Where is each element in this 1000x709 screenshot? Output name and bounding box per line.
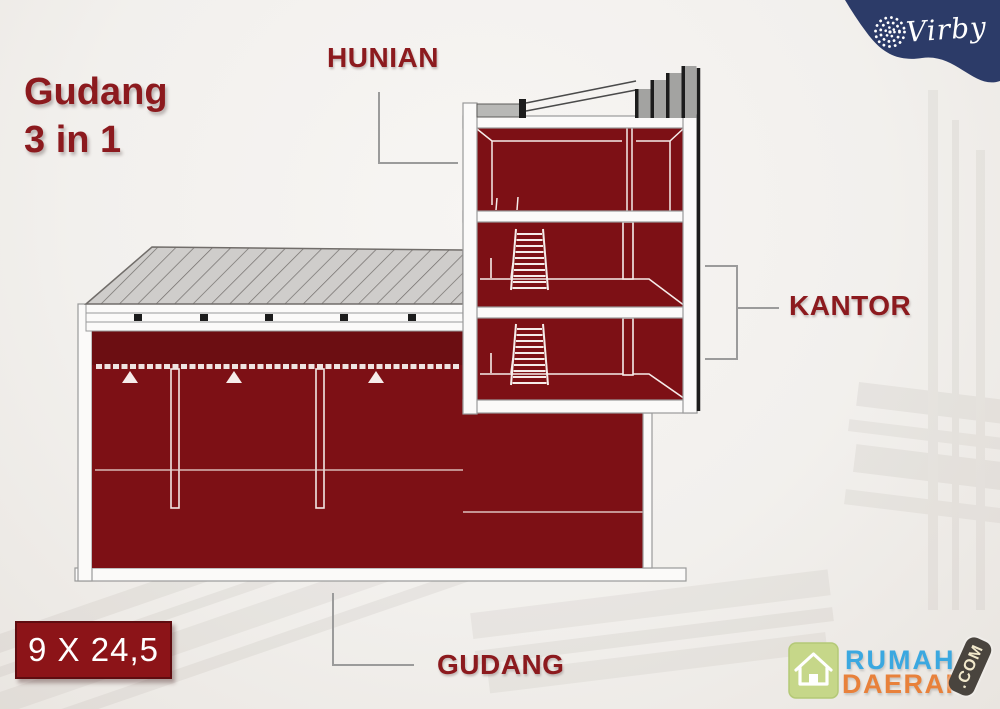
office-column xyxy=(623,318,633,375)
title-line2: 3 in 1 xyxy=(24,116,168,164)
warehouse-left-wall xyxy=(78,304,92,581)
page-title: Gudang 3 in 1 xyxy=(24,68,168,164)
warehouse-column xyxy=(171,369,179,508)
warehouse-interior xyxy=(92,331,463,568)
rumahdaerah-house-icon xyxy=(789,643,838,698)
virby-brand-name: Virby xyxy=(905,10,988,49)
warehouse-column xyxy=(316,369,324,508)
size-badge: 9 X 24,5 xyxy=(15,621,172,679)
tower-left-wall xyxy=(463,103,477,414)
tower-right-wall xyxy=(683,115,697,413)
title-line1: Gudang xyxy=(24,68,168,116)
label-hunian: HUNIAN xyxy=(303,42,463,74)
under-tower-block xyxy=(463,413,652,568)
kantor-bracket xyxy=(705,266,737,359)
label-gudang: GUDANG xyxy=(437,649,564,681)
floor-hunian xyxy=(477,128,683,211)
warehouse-roof xyxy=(86,247,463,304)
label-kantor: KANTOR xyxy=(789,290,911,322)
warehouse-eave-band xyxy=(86,304,463,331)
tower-base-slab xyxy=(463,400,697,413)
office-column xyxy=(623,222,633,279)
hunian-leader-line xyxy=(379,92,458,163)
floor-office-upper xyxy=(477,222,685,307)
ground-slab xyxy=(75,568,686,581)
slide: Gudang 3 in 1 HUNIAN KANTOR GUDANG 9 X 2… xyxy=(0,0,1000,709)
floor-slab-2 xyxy=(463,307,697,318)
floor-office-lower xyxy=(477,318,685,400)
floor-slab-1 xyxy=(463,211,697,222)
